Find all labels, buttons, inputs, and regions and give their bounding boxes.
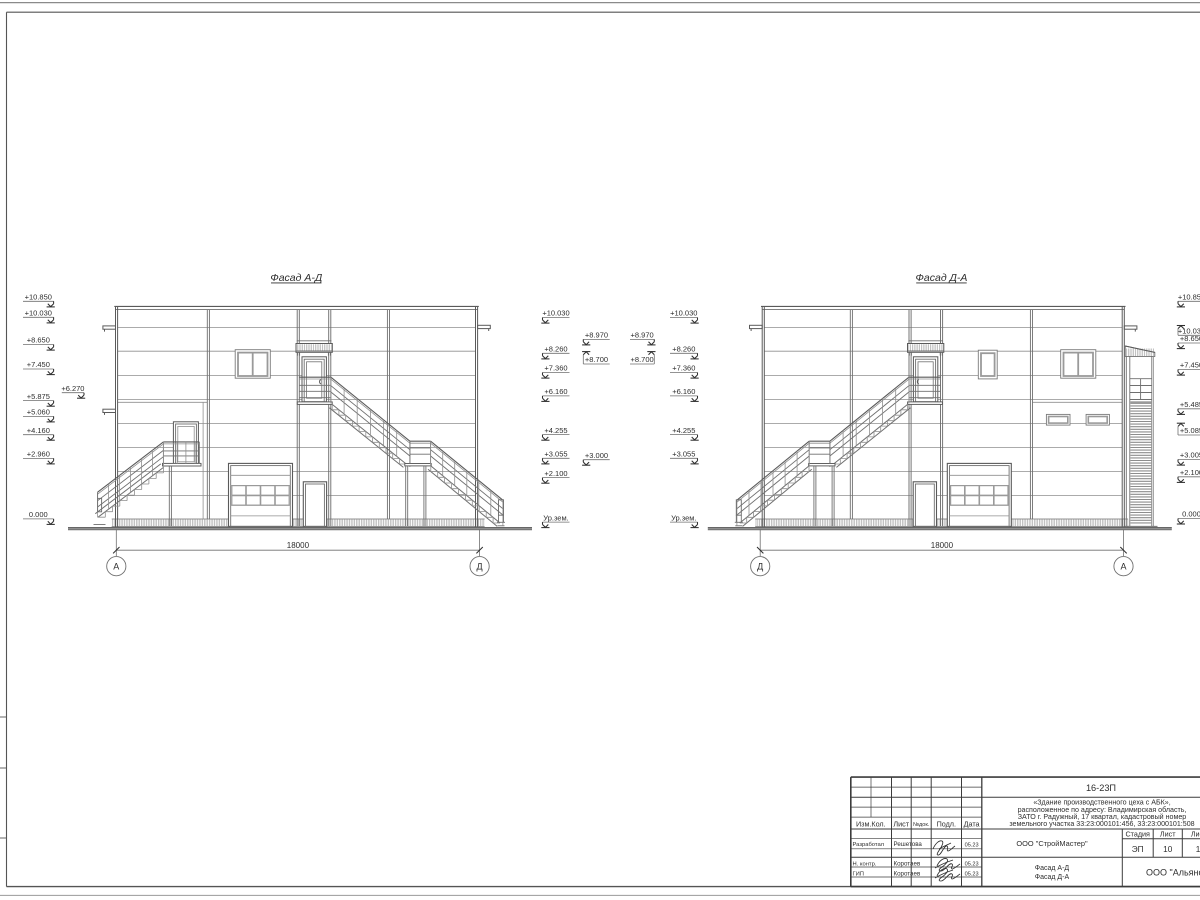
svg-text:+8.970: +8.970 — [585, 331, 608, 340]
svg-text:А: А — [1120, 561, 1126, 571]
svg-text:+3.055: +3.055 — [544, 450, 567, 459]
svg-text:ГИП: ГИП — [853, 871, 864, 877]
svg-text:+7.360: +7.360 — [544, 364, 567, 373]
svg-text:+4.255: +4.255 — [672, 426, 695, 435]
svg-text:Дата: Дата — [964, 819, 980, 828]
svg-text:+7.360: +7.360 — [672, 364, 695, 373]
svg-text:Фасад Д-А: Фасад Д-А — [916, 272, 968, 284]
svg-text:Фасад Д-А: Фасад Д-А — [1035, 874, 1070, 881]
svg-text:0.000: 0.000 — [29, 510, 48, 519]
svg-text:Д: Д — [757, 561, 763, 571]
svg-text:№док.: №док. — [913, 822, 930, 828]
svg-text:+2.960: +2.960 — [27, 450, 50, 459]
svg-text:+6.160: +6.160 — [672, 387, 695, 396]
svg-text:+8.650: +8.650 — [27, 336, 50, 345]
svg-text:Лист: Лист — [893, 819, 909, 828]
svg-text:+8.260: +8.260 — [544, 345, 567, 354]
svg-text:+8.260: +8.260 — [672, 345, 695, 354]
svg-text:05.23: 05.23 — [965, 872, 979, 878]
svg-text:Фасад А-Д: Фасад А-Д — [270, 272, 322, 284]
svg-text:А: А — [113, 561, 119, 571]
svg-text:+3.005: +3.005 — [1180, 451, 1200, 460]
svg-text:+2.100: +2.100 — [544, 469, 567, 478]
svg-text:+2.100: +2.100 — [1180, 468, 1200, 477]
svg-text:Н. контр.: Н. контр. — [853, 861, 877, 867]
svg-text:+4.160: +4.160 — [27, 426, 50, 435]
svg-text:ООО "СтройМастер": ООО "СтройМастер" — [1016, 839, 1088, 848]
svg-text:+10.030: +10.030 — [542, 309, 569, 318]
svg-text:Фасад А-Д: Фасад А-Д — [1035, 865, 1070, 872]
svg-text:10: 10 — [1163, 845, 1173, 854]
svg-text:+7.450: +7.450 — [27, 360, 50, 369]
svg-text:Коротаев: Коротаев — [894, 860, 921, 867]
svg-text:Ур.зем.: Ур.зем. — [543, 513, 568, 522]
svg-text:18000: 18000 — [287, 541, 310, 550]
svg-text:+5.485: +5.485 — [1180, 400, 1200, 409]
svg-text:+6.160: +6.160 — [544, 387, 567, 396]
svg-text:+10.030: +10.030 — [1178, 327, 1200, 336]
svg-text:Решетова: Решетова — [894, 841, 923, 848]
svg-text:+10.030: +10.030 — [670, 309, 697, 318]
svg-text:05.23: 05.23 — [965, 842, 979, 848]
svg-text:ООО "Альянс-Пр: ООО "Альянс-Пр — [1146, 867, 1200, 877]
svg-text:+10.850: +10.850 — [25, 293, 52, 302]
svg-text:05.23: 05.23 — [965, 862, 979, 868]
svg-text:0.000: 0.000 — [1182, 510, 1200, 519]
svg-text:+5.085: +5.085 — [1180, 426, 1200, 435]
svg-text:Ур.зем.: Ур.зем. — [671, 513, 696, 522]
svg-text:Лис: Лис — [1191, 830, 1200, 839]
svg-text:земельного участка 33:23:00010: земельного участка 33:23:000101:456, 33:… — [1009, 820, 1194, 828]
svg-text:+3.000: +3.000 — [585, 451, 608, 460]
svg-text:Лист: Лист — [1160, 830, 1176, 839]
svg-text:+6.270: +6.270 — [61, 384, 84, 393]
svg-text:Разработал: Разработал — [853, 842, 885, 848]
svg-text:Коротаев: Коротаев — [894, 870, 921, 877]
svg-text:+5.060: +5.060 — [27, 408, 50, 417]
svg-text:+8.700: +8.700 — [631, 355, 654, 364]
svg-text:+8.700: +8.700 — [585, 355, 608, 364]
svg-text:+7.450: +7.450 — [1180, 361, 1200, 370]
svg-text:1: 1 — [1196, 845, 1200, 854]
svg-text:18000: 18000 — [931, 541, 954, 550]
svg-text:+3.055: +3.055 — [672, 450, 695, 459]
svg-text:+8.970: +8.970 — [631, 331, 654, 340]
svg-text:Изм.Кол.: Изм.Кол. — [856, 819, 886, 828]
svg-text:+5.875: +5.875 — [27, 392, 50, 401]
svg-text:Подл.: Подл. — [937, 819, 956, 828]
svg-text:+10.850: +10.850 — [1178, 293, 1200, 302]
svg-text:+10.030: +10.030 — [25, 309, 52, 318]
svg-text:ЭП: ЭП — [1132, 845, 1144, 854]
svg-text:+4.255: +4.255 — [544, 426, 567, 435]
svg-text:Стадия: Стадия — [1125, 830, 1150, 839]
svg-text:16-23П: 16-23П — [1086, 783, 1116, 793]
svg-text:Д: Д — [477, 561, 483, 571]
